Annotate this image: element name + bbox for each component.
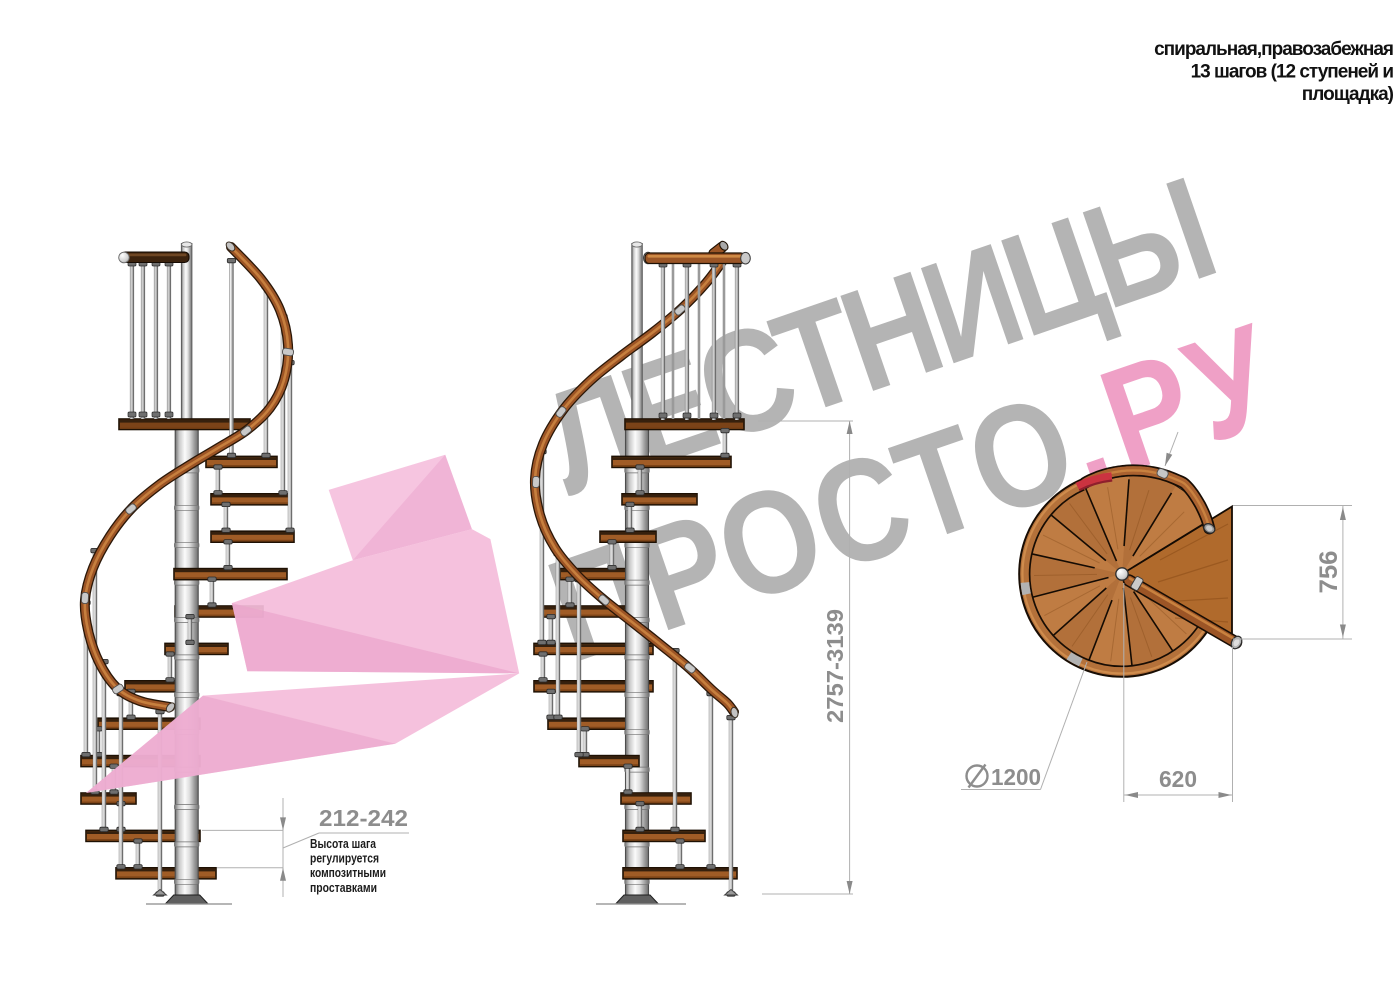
- svg-text:1200: 1200: [991, 764, 1041, 790]
- svg-text:Высота шагарегулируетсякомпози: Высота шагарегулируетсякомпозитнымипрост…: [310, 836, 386, 895]
- svg-text:спиральная,правозабежная13 шаг: спиральная,правозабежная13 шагов (12 сту…: [1154, 39, 1394, 105]
- svg-text:756: 756: [1315, 551, 1343, 594]
- svg-text:212-242: 212-242: [319, 805, 408, 831]
- svg-text:620: 620: [1159, 766, 1197, 792]
- svg-text:2757-3139: 2757-3139: [822, 609, 848, 723]
